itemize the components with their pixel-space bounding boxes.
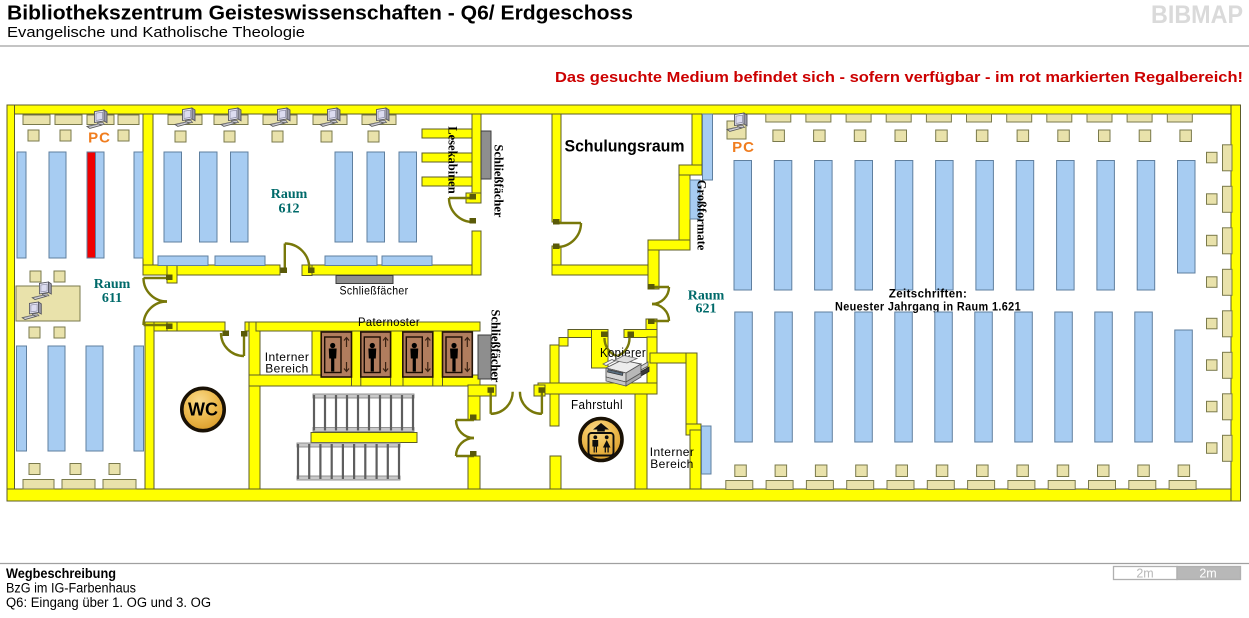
svg-text:Großformate: Großformate xyxy=(695,180,709,251)
svg-text:612: 612 xyxy=(279,202,300,217)
svg-text:Lesekabinen: Lesekabinen xyxy=(446,126,460,193)
svg-text:Zeitschriften:: Zeitschriften: xyxy=(889,289,967,301)
svg-text:2m: 2m xyxy=(1136,567,1153,581)
svg-text:BzG im IG-Farbenhaus: BzG im IG-Farbenhaus xyxy=(6,581,136,596)
svg-text:Evangelische und Katholische T: Evangelische und Katholische Theologie xyxy=(7,24,305,41)
svg-text:Raum: Raum xyxy=(271,187,308,202)
svg-text:Schließfächer: Schließfächer xyxy=(492,145,506,218)
svg-text:Das gesuchte Medium befindet s: Das gesuchte Medium befindet sich - sofe… xyxy=(555,69,1243,86)
svg-text:BIBMAP: BIBMAP xyxy=(1151,1,1243,29)
svg-text:Schulungsraum: Schulungsraum xyxy=(565,138,685,156)
svg-text:Paternoster: Paternoster xyxy=(358,315,420,329)
svg-text:Bereich: Bereich xyxy=(265,362,309,376)
svg-text:Q6: Eingang über 1. OG und 3.: Q6: Eingang über 1. OG und 3. OG xyxy=(6,595,211,610)
svg-text:PC: PC xyxy=(732,139,755,156)
svg-text:611: 611 xyxy=(102,291,122,306)
svg-text:Schließfächer: Schließfächer xyxy=(489,310,503,383)
svg-text:Wegbeschreibung: Wegbeschreibung xyxy=(6,566,116,581)
svg-text:Bereich: Bereich xyxy=(650,457,694,471)
svg-text:Bibliothekszentrum Geisteswiss: Bibliothekszentrum Geisteswissenschaften… xyxy=(7,3,633,25)
svg-text:PC: PC xyxy=(88,130,111,147)
svg-text:Fahrstuhl: Fahrstuhl xyxy=(571,398,623,412)
svg-text:2m: 2m xyxy=(1199,567,1216,581)
svg-text:Raum: Raum xyxy=(94,277,131,292)
svg-text:WC: WC xyxy=(188,400,218,420)
svg-text:Schließfächer: Schließfächer xyxy=(340,284,409,298)
svg-text:621: 621 xyxy=(696,302,717,317)
